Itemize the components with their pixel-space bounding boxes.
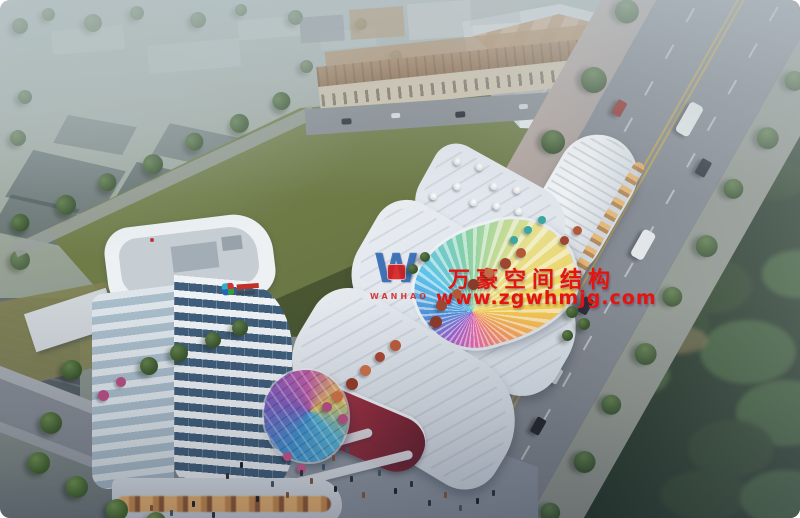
autumn-tree — [332, 391, 343, 402]
flowering-tree — [338, 414, 348, 424]
park-trees — [660, 470, 750, 518]
autumn-tree — [452, 289, 462, 299]
tree — [10, 130, 26, 146]
tree — [140, 151, 167, 178]
pedestrian — [170, 510, 173, 516]
flowering-tree — [116, 377, 126, 387]
tree — [300, 60, 313, 73]
pedestrian — [378, 470, 381, 476]
autumn-tree — [500, 258, 511, 269]
autumn-tree — [573, 226, 582, 235]
pedestrian — [362, 492, 365, 498]
autumn-tree — [468, 279, 479, 290]
pedestrian — [271, 481, 274, 487]
autumn-tree — [375, 352, 385, 362]
pedestrian — [350, 476, 353, 482]
pedestrian — [212, 512, 215, 518]
construction-block — [469, 0, 521, 26]
rooftop-equipment — [221, 235, 243, 251]
autumn-tree — [430, 316, 442, 328]
tree — [140, 357, 158, 375]
tree — [408, 264, 418, 274]
tower-retail-base — [112, 478, 342, 518]
pedestrian — [428, 500, 431, 506]
pedestrian — [394, 488, 397, 494]
pedestrian — [334, 486, 337, 492]
pedestrian — [459, 505, 462, 511]
pedestrian — [322, 464, 325, 470]
autumn-tree — [360, 365, 371, 376]
district-building — [53, 115, 137, 155]
pedestrian — [410, 481, 413, 487]
tree — [18, 90, 32, 104]
autumn-tree — [484, 268, 494, 278]
car — [455, 111, 465, 118]
autumn-tree — [390, 340, 401, 351]
tree — [232, 320, 248, 336]
light-roof — [147, 38, 241, 74]
park-trees — [700, 320, 796, 384]
office-tower — [86, 216, 326, 518]
tree — [562, 330, 573, 341]
tree — [170, 344, 188, 362]
tower-logo-text-red — [237, 283, 259, 290]
tree — [40, 412, 62, 434]
flowering-tree — [322, 402, 332, 412]
pedestrian — [444, 492, 447, 498]
rooftop-equipment — [171, 241, 220, 272]
pedestrian — [492, 490, 495, 496]
tree — [28, 452, 50, 474]
tree — [106, 499, 128, 518]
tower-logo-mark — [221, 283, 234, 296]
teal-umbrella — [510, 236, 518, 244]
storefront-lights — [116, 496, 331, 512]
pedestrian — [256, 496, 259, 502]
tower-west-face — [92, 285, 174, 491]
tree — [578, 318, 590, 330]
tree — [227, 111, 252, 136]
pedestrian — [300, 470, 303, 476]
tree — [420, 252, 430, 262]
flowering-tree — [98, 390, 109, 401]
pedestrian — [346, 447, 349, 453]
tree — [84, 14, 102, 32]
pedestrian — [150, 505, 153, 511]
pedestrian — [310, 478, 313, 484]
autumn-tree — [436, 300, 447, 311]
pedestrian — [332, 455, 335, 461]
pedestrian — [240, 462, 243, 468]
car — [391, 113, 400, 119]
tower-logo-text-grey — [237, 290, 255, 295]
tree — [42, 8, 55, 21]
tree — [205, 332, 221, 348]
teal-umbrella — [524, 226, 532, 234]
tree — [66, 476, 88, 498]
tree — [53, 191, 80, 218]
flowering-tree — [283, 452, 292, 461]
autumn-tree — [346, 378, 358, 390]
construction-block — [407, 0, 473, 40]
car — [519, 104, 528, 110]
park-trees — [762, 250, 800, 298]
tree — [190, 12, 206, 28]
tower-logo — [221, 280, 266, 299]
aerial-rendering: 万达广场 — [0, 0, 800, 518]
glass-dome — [264, 370, 348, 462]
park-trees — [740, 470, 800, 518]
construction-block — [299, 14, 345, 43]
pedestrian — [286, 492, 289, 498]
tree — [130, 6, 144, 20]
roof-beacon — [150, 238, 154, 242]
teal-umbrella — [538, 216, 546, 224]
pedestrian — [192, 501, 195, 507]
tree — [566, 306, 578, 318]
tree — [62, 360, 82, 380]
tree — [235, 4, 247, 16]
pedestrian — [226, 473, 229, 479]
construction-block — [349, 6, 405, 40]
autumn-tree — [560, 236, 569, 245]
pedestrian — [476, 498, 479, 504]
autumn-tree — [516, 248, 526, 258]
car — [341, 118, 351, 125]
tree — [12, 18, 28, 34]
